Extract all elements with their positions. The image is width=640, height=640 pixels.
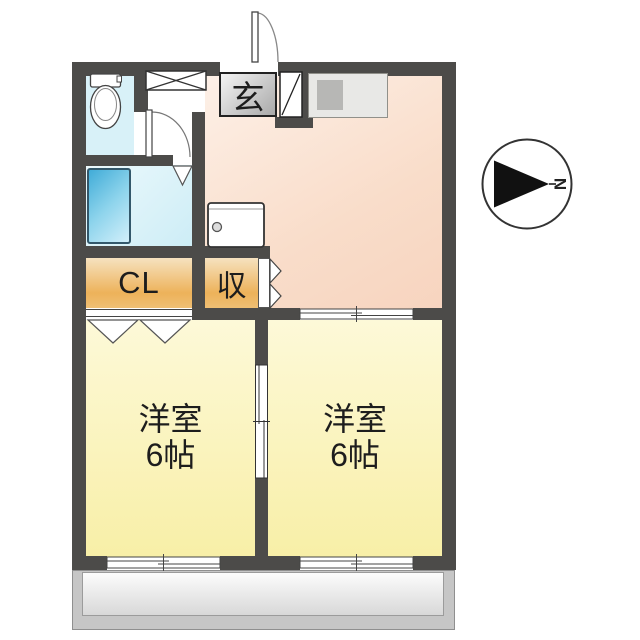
storage-door-panel [258, 258, 270, 308]
wall-right [442, 62, 456, 570]
wall-left [72, 62, 86, 570]
entrance-door [252, 12, 278, 62]
bedroom1-size: 6帖 [146, 438, 196, 474]
toilet-room [86, 76, 134, 157]
kitchen-sink [317, 80, 343, 110]
wall-toilet-right [134, 62, 148, 112]
bedroom1-label: 洋室 6帖 [86, 394, 255, 482]
wall-bottom-2 [220, 556, 300, 570]
wall-mid-horizontal-2 [413, 308, 442, 320]
entrance-label: 玄 [219, 72, 277, 117]
bedroom1-name: 洋室 [138, 402, 202, 438]
balcony-floor [82, 572, 444, 616]
wall-bedroom-divider-bottom [255, 478, 268, 557]
wall-bath-bottom [72, 246, 270, 258]
bedroom2-size: 6帖 [330, 438, 380, 474]
bathtub [87, 168, 131, 244]
bedroom2-name: 洋室 [323, 402, 387, 438]
wall-entrance-stub [275, 117, 313, 128]
floor-plan: N 玄 CL 収 洋室 6帖 洋室 6帖 [0, 0, 640, 640]
closet-label: CL [86, 258, 192, 308]
wall-bottom-3 [413, 556, 456, 570]
compass-north-label: N [551, 178, 570, 190]
washroom-door [146, 110, 190, 157]
compass: N [483, 140, 572, 229]
wall-spine [192, 112, 205, 320]
wall-mid-horizontal-1 [192, 308, 300, 320]
wall-toilet-bottom [72, 155, 173, 166]
storage-label: 収 [205, 258, 258, 308]
bedroom2-label: 洋室 6帖 [268, 394, 442, 482]
compass-north-arrow [494, 161, 549, 208]
wall-bottom-1 [72, 556, 107, 570]
wall-bedroom-divider-top [255, 320, 268, 365]
compass-circle [483, 140, 572, 229]
closet-door-line [86, 309, 192, 317]
